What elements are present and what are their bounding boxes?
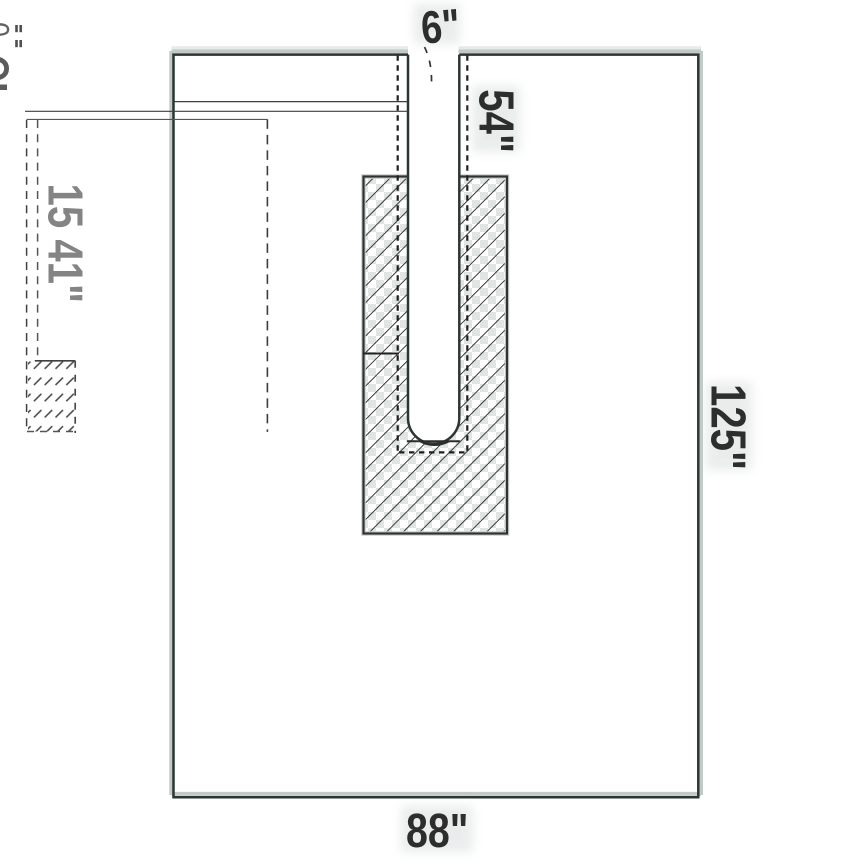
svg-text:0: 0 (0, 22, 14, 37)
svg-text:88": 88" (406, 804, 468, 858)
svg-text:0: 0 (0, 53, 22, 84)
svg-text:6": 6" (419, 0, 462, 54)
svg-text:54": 54" (469, 89, 524, 153)
svg-text:15 41": 15 41" (38, 184, 93, 304)
svg-text:125": 125" (701, 384, 756, 470)
